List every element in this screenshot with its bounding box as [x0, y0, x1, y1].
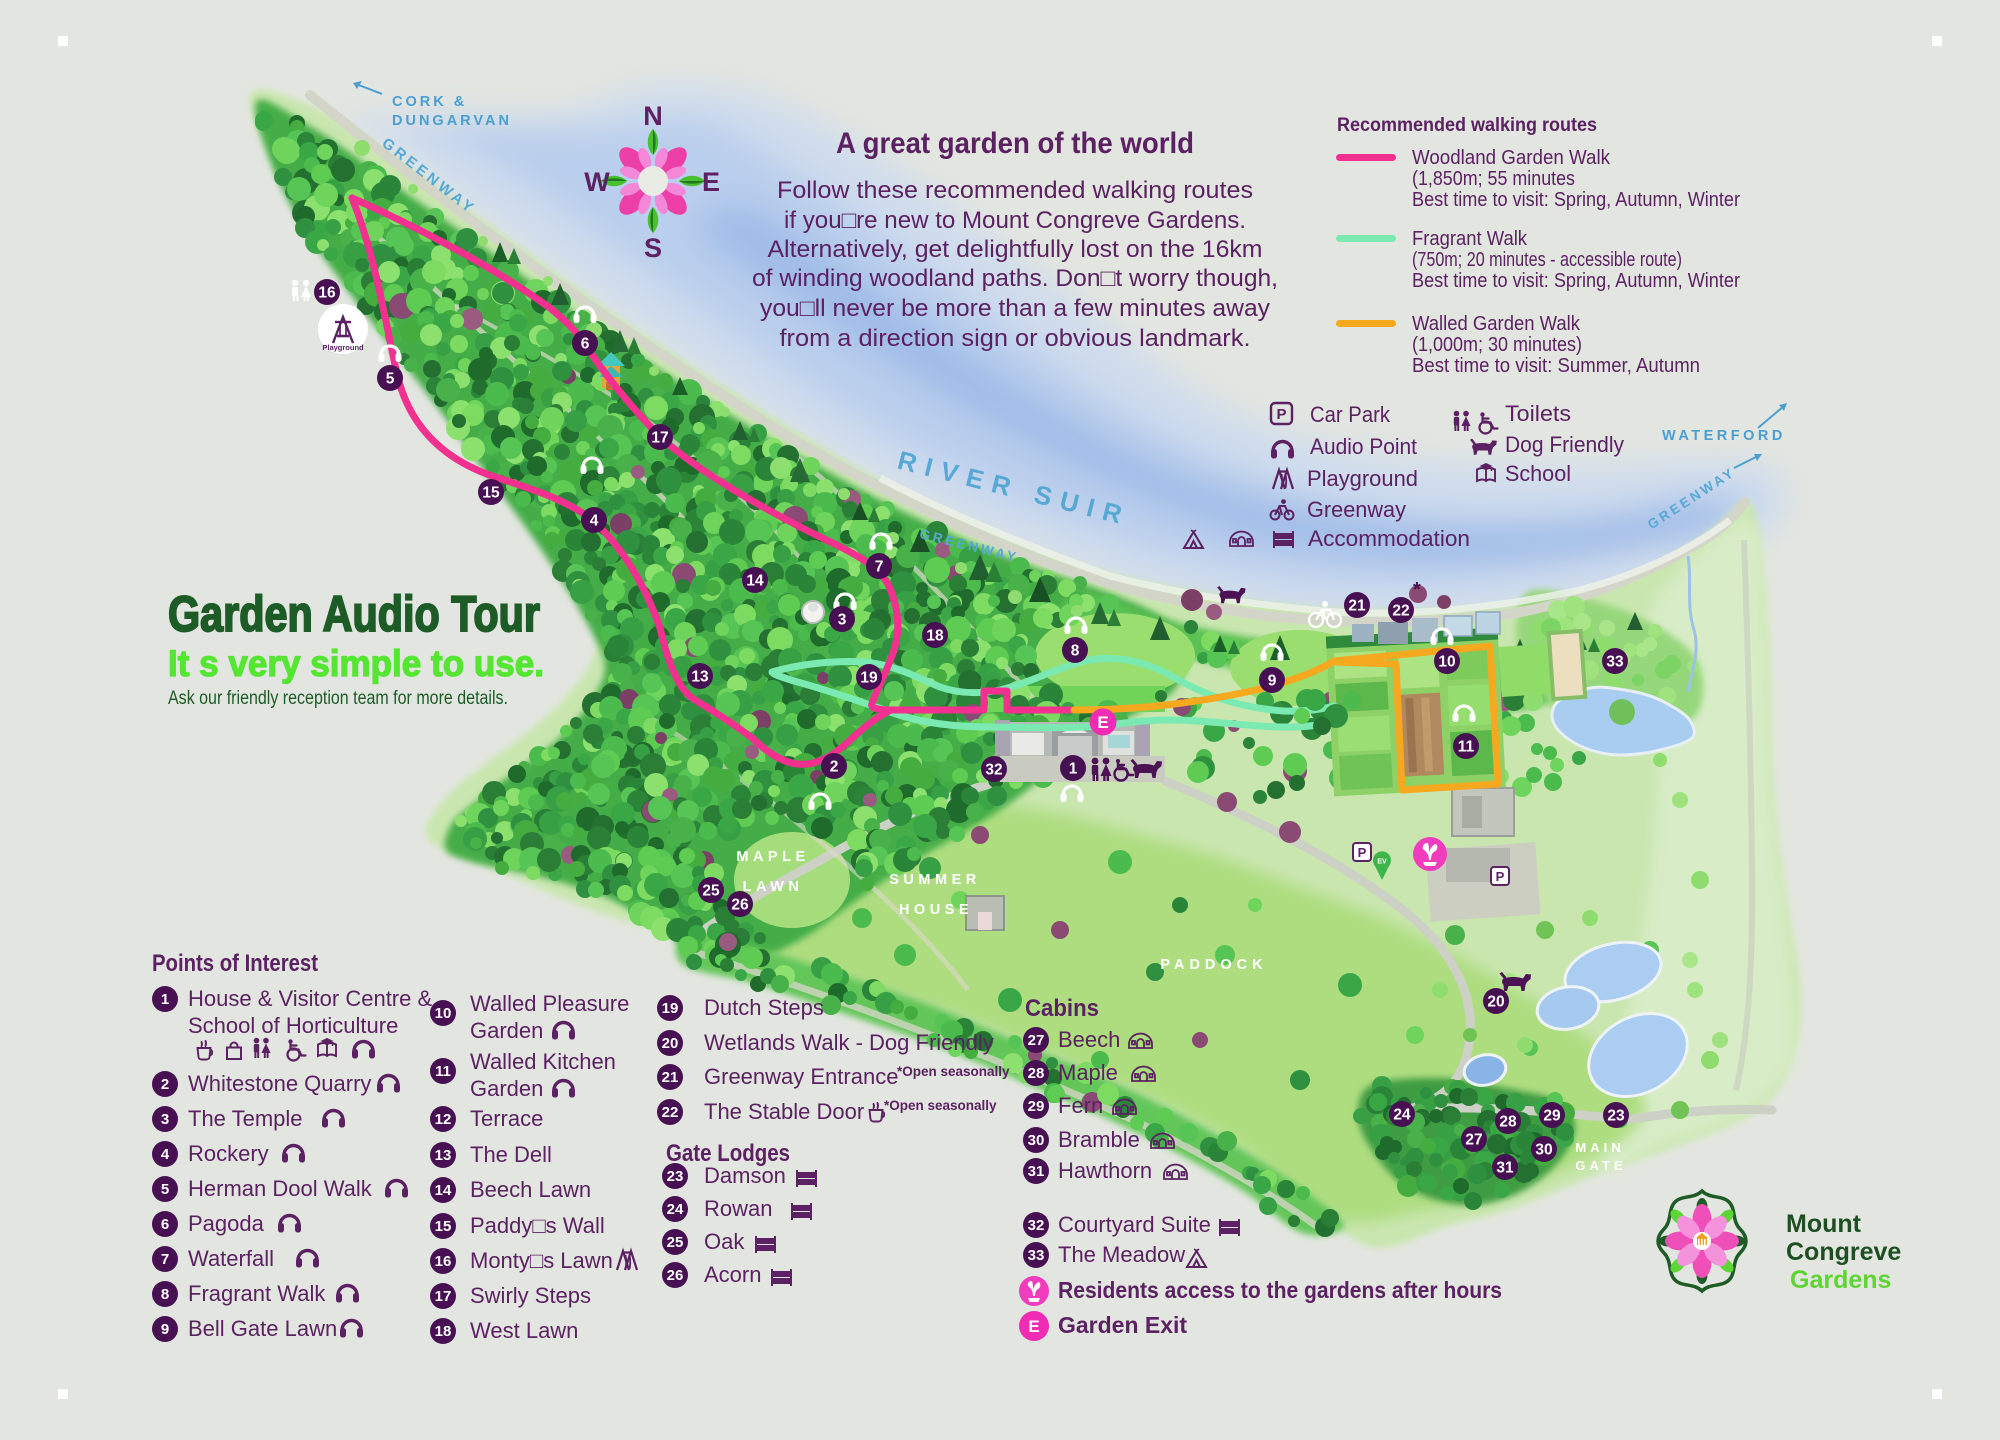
svg-text:Acorn: Acorn [704, 1262, 761, 1287]
svg-text:Swirly Steps: Swirly Steps [470, 1283, 591, 1308]
svg-text:31: 31 [1496, 1160, 1514, 1177]
svg-text:Courtyard Suite: Courtyard Suite [1058, 1212, 1211, 1237]
svg-text:6: 6 [161, 1216, 169, 1233]
svg-text:(1,850m; 55 minutes: (1,850m; 55 minutes [1412, 168, 1575, 190]
svg-text:WATERFORD: WATERFORD [1662, 428, 1786, 444]
svg-text:Greenway: Greenway [1307, 497, 1406, 522]
svg-text:9: 9 [161, 1321, 169, 1338]
svg-text:Oak: Oak [704, 1229, 745, 1254]
svg-text:25: 25 [702, 883, 720, 900]
svg-text:(750m; 20 minutes - accessible: (750m; 20 minutes - accessible route) [1412, 249, 1682, 271]
svg-text:West Lawn: West Lawn [470, 1318, 578, 1343]
svg-text:30: 30 [1028, 1132, 1045, 1149]
svg-text:18: 18 [435, 1323, 452, 1340]
svg-text:20: 20 [1487, 994, 1504, 1011]
svg-text:26: 26 [731, 897, 749, 914]
svg-text:Waterfall: Waterfall [188, 1246, 274, 1271]
svg-text:27: 27 [1028, 1032, 1045, 1049]
svg-text:P: P [1358, 845, 1367, 860]
svg-text:HOUSE: HOUSE [899, 902, 973, 918]
svg-text:Accommodation: Accommodation [1308, 526, 1470, 551]
svg-text:Bell Gate Lawn: Bell Gate Lawn [188, 1316, 337, 1341]
svg-text:It s very simple to use.: It s very simple to use. [168, 643, 544, 684]
svg-text:School of Horticulture: School of Horticulture [188, 1013, 398, 1038]
svg-text:P: P [1496, 869, 1505, 884]
svg-text:Pagoda: Pagoda [188, 1211, 265, 1236]
svg-text:19: 19 [860, 670, 878, 687]
svg-text:Audio Point: Audio Point [1310, 434, 1417, 459]
svg-text:5: 5 [386, 371, 395, 388]
svg-text:Rowan: Rowan [704, 1196, 772, 1221]
svg-text:13: 13 [435, 1147, 452, 1164]
svg-text:E: E [702, 167, 720, 197]
svg-text:Damson: Damson [704, 1163, 786, 1188]
svg-text:30: 30 [1535, 1142, 1552, 1159]
svg-text:26: 26 [667, 1267, 684, 1284]
svg-text:Points of Interest: Points of Interest [152, 950, 318, 977]
svg-text:12: 12 [435, 1111, 452, 1128]
svg-text:32: 32 [985, 762, 1002, 779]
svg-text:EV: EV [1377, 859, 1387, 866]
svg-text:2: 2 [830, 759, 839, 776]
svg-text:33: 33 [1028, 1247, 1045, 1264]
svg-text:Greenway Entrance: Greenway Entrance [704, 1064, 898, 1089]
svg-text:Wetlands Walk - Dog Friendly: Wetlands Walk - Dog Friendly [704, 1030, 994, 1055]
svg-text:Best time to visit: Summer, Au: Best time to visit: Summer, Autumn [1412, 355, 1700, 377]
svg-text:Whitestone Quarry: Whitestone Quarry [188, 1071, 371, 1096]
svg-text:LAWN: LAWN [743, 879, 804, 895]
svg-text:Follow these recommended walki: Follow these recommended walking routes [777, 177, 1253, 204]
svg-text:20: 20 [662, 1035, 679, 1052]
svg-text:16: 16 [435, 1253, 452, 1270]
svg-text:29: 29 [1028, 1098, 1045, 1115]
svg-text:The Temple: The Temple [188, 1106, 303, 1131]
svg-text:Walled Pleasure: Walled Pleasure [470, 991, 629, 1016]
svg-text:8: 8 [161, 1286, 169, 1303]
svg-text:House & Visitor Centre &: House & Visitor Centre & [188, 986, 432, 1011]
svg-text:The Dell: The Dell [470, 1142, 552, 1167]
svg-text:Toilets: Toilets [1505, 401, 1571, 426]
svg-text:25: 25 [667, 1234, 684, 1251]
svg-text:23: 23 [1607, 1108, 1625, 1125]
svg-text:Garden: Garden [470, 1018, 543, 1043]
svg-text:MAPLE: MAPLE [736, 849, 809, 865]
svg-text:The Meadow: The Meadow [1058, 1242, 1185, 1267]
svg-text:from a direction sign or obvio: from a direction sign or obvious landmar… [780, 325, 1251, 352]
svg-text:Walled Garden Walk: Walled Garden Walk [1412, 313, 1581, 335]
svg-text:Paddy□s Wall: Paddy□s Wall [470, 1213, 605, 1238]
svg-text:22: 22 [662, 1104, 679, 1121]
svg-text:Ask our friendly reception tea: Ask our friendly reception team for more… [168, 688, 508, 709]
svg-text:8: 8 [1071, 643, 1080, 660]
svg-text:2: 2 [161, 1076, 169, 1093]
svg-text:1: 1 [1069, 761, 1078, 778]
svg-text:21: 21 [662, 1069, 679, 1086]
svg-text:Herman Dool Walk: Herman Dool Walk [188, 1176, 373, 1201]
svg-text:Hawthorn: Hawthorn [1058, 1158, 1152, 1183]
svg-text:13: 13 [691, 669, 709, 686]
svg-text:5: 5 [161, 1181, 169, 1198]
svg-text:you□ll never be more than a fe: you□ll never be more than a few minutes … [760, 295, 1270, 322]
svg-text:*Open seasonally: *Open seasonally [897, 1064, 1010, 1079]
svg-text:Bramble: Bramble [1058, 1127, 1140, 1152]
svg-text:of winding woodland paths. Don: of winding woodland paths. Don□t worry t… [752, 265, 1278, 292]
svg-text:PADDOCK: PADDOCK [1160, 957, 1267, 973]
svg-text:6: 6 [581, 336, 590, 353]
svg-text:Fragrant Walk: Fragrant Walk [188, 1281, 326, 1306]
svg-text:11: 11 [1458, 739, 1475, 756]
svg-text:Garden: Garden [470, 1076, 543, 1101]
svg-text:Best time to visit: Spring, Au: Best time to visit: Spring, Autumn, Wint… [1412, 189, 1740, 211]
svg-text:14: 14 [435, 1182, 452, 1199]
svg-text:9: 9 [1268, 673, 1277, 690]
svg-text:Maple: Maple [1058, 1060, 1118, 1085]
svg-text:W: W [584, 167, 610, 197]
svg-text:Monty□s Lawn: Monty□s Lawn [470, 1248, 613, 1273]
svg-text:10: 10 [435, 1005, 452, 1022]
svg-text:Residents access to the garden: Residents access to the gardens after ho… [1058, 1277, 1502, 1303]
svg-text:Terrace: Terrace [470, 1106, 543, 1131]
svg-text:17: 17 [435, 1288, 452, 1305]
svg-text:DUNGARVAN: DUNGARVAN [392, 113, 512, 129]
svg-text:*: * [1413, 579, 1421, 601]
svg-text:7: 7 [875, 559, 884, 576]
svg-text:29: 29 [1543, 1108, 1561, 1125]
svg-text:Garden Audio Tour: Garden Audio Tour [168, 586, 540, 642]
svg-text:16: 16 [318, 285, 336, 302]
svg-text:4: 4 [161, 1146, 170, 1163]
svg-text:28: 28 [1499, 1114, 1517, 1131]
svg-text:A great garden of the world: A great garden of the world [836, 127, 1194, 160]
svg-text:MAIN: MAIN [1575, 1140, 1624, 1155]
svg-text:E: E [1097, 713, 1108, 732]
svg-text:32: 32 [1028, 1217, 1045, 1234]
svg-text:24: 24 [667, 1201, 684, 1218]
svg-text:(1,000m; 30 minutes): (1,000m; 30 minutes) [1412, 334, 1582, 356]
svg-text:Cabins: Cabins [1025, 995, 1099, 1022]
svg-text:24: 24 [1393, 1107, 1411, 1124]
svg-text:GATE: GATE [1575, 1158, 1626, 1173]
svg-text:3: 3 [161, 1111, 169, 1128]
svg-text:18: 18 [926, 628, 944, 645]
svg-text:Garden Exit: Garden Exit [1058, 1312, 1187, 1338]
svg-text:15: 15 [435, 1218, 452, 1235]
svg-text:7: 7 [161, 1251, 169, 1268]
svg-text:22: 22 [1392, 603, 1409, 620]
svg-text:27: 27 [1465, 1132, 1482, 1149]
svg-text:School: School [1505, 461, 1571, 486]
svg-text:Fragrant Walk: Fragrant Walk [1412, 228, 1528, 250]
svg-text:S: S [644, 233, 662, 263]
svg-text:1: 1 [161, 991, 169, 1008]
svg-text:21: 21 [1348, 598, 1366, 615]
svg-text:*Open seasonally: *Open seasonally [884, 1098, 997, 1113]
svg-text:Alternatively, get delightfull: Alternatively, get delightfully lost on … [768, 236, 1263, 263]
svg-text:N: N [643, 101, 663, 131]
svg-text:Playground: Playground [1307, 466, 1418, 491]
svg-text:31: 31 [1028, 1163, 1045, 1180]
svg-text:14: 14 [746, 573, 764, 590]
svg-text:Recommended walking routes: Recommended walking routes [1337, 115, 1597, 136]
svg-text:3: 3 [838, 612, 847, 629]
svg-text:E: E [1028, 1317, 1039, 1336]
svg-text:11: 11 [435, 1063, 451, 1080]
svg-text:33: 33 [1606, 654, 1624, 671]
svg-text:Playground: Playground [322, 343, 364, 352]
svg-text:Rockery: Rockery [188, 1141, 269, 1166]
svg-text:The Stable Door: The Stable Door [704, 1099, 864, 1124]
svg-text:19: 19 [662, 1000, 679, 1017]
svg-text:Dutch Steps: Dutch Steps [704, 995, 824, 1020]
svg-text:Mount: Mount [1786, 1210, 1862, 1238]
svg-text:Beech Lawn: Beech Lawn [470, 1177, 591, 1202]
svg-text:Congreve: Congreve [1786, 1238, 1901, 1266]
svg-text:Dog Friendly: Dog Friendly [1505, 432, 1624, 457]
svg-text:23: 23 [667, 1168, 684, 1185]
svg-text:15: 15 [482, 485, 500, 502]
svg-text:Walled Kitchen: Walled Kitchen [470, 1049, 616, 1074]
svg-text:Woodland Garden Walk: Woodland Garden Walk [1412, 147, 1611, 169]
svg-text:Car Park: Car Park [1310, 402, 1391, 427]
svg-text:CORK &: CORK & [392, 94, 467, 110]
svg-text:Best time to visit: Spring, Au: Best time to visit: Spring, Autumn, Wint… [1412, 270, 1740, 292]
svg-text:Beech: Beech [1058, 1027, 1120, 1052]
svg-text:4: 4 [590, 513, 599, 530]
svg-text:10: 10 [1438, 654, 1455, 671]
svg-text:28: 28 [1028, 1065, 1045, 1082]
svg-text:SUMMER: SUMMER [889, 872, 980, 888]
svg-text:17: 17 [651, 430, 668, 447]
svg-text:Fern: Fern [1058, 1093, 1103, 1118]
svg-text:Gardens: Gardens [1790, 1266, 1891, 1294]
svg-text:if you□re new to Mount Congrev: if you□re new to Mount Congreve Gardens. [784, 207, 1246, 234]
